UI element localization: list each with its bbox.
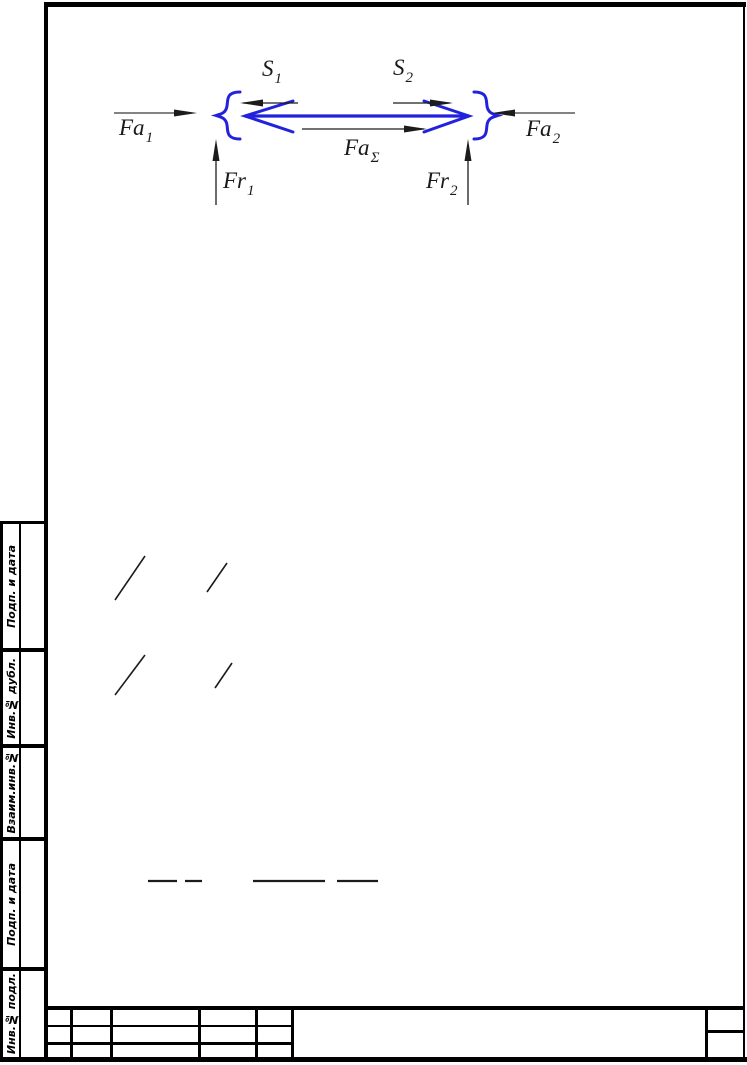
sidebar-cell-podp-i-data-2: Подп. и дата xyxy=(3,841,19,967)
frame-border-bottom xyxy=(0,1057,747,1062)
label-s2: S2 xyxy=(393,56,412,79)
titleblock-vline-izm xyxy=(70,1010,73,1057)
titleblock-vline-list xyxy=(110,1010,113,1057)
sidebar-cell-inv-dubl: Инв.№ дубл. xyxy=(3,652,19,744)
frame-border-right xyxy=(743,2,745,1062)
label-fa1: Fa1 xyxy=(119,116,152,139)
fr2-arrowhead-icon xyxy=(465,139,472,161)
label-fa2: Fa2 xyxy=(526,117,559,140)
s1-arrowhead-icon xyxy=(240,100,263,107)
label-fr2: Fr2 xyxy=(426,169,457,192)
titleblock-border-top xyxy=(44,1006,745,1010)
fraction-slash-1 xyxy=(115,556,145,600)
label-fr1: Fr1 xyxy=(223,169,254,192)
titleblock-row-line-thick xyxy=(48,1042,293,1045)
label-fa-sum: FaΣ xyxy=(344,136,378,159)
titleblock-vline-data xyxy=(291,1010,294,1057)
drawing-sheet: S1 S2 Fa1 Fa2 FaΣ Fr1 Fr2 Подп. и дата И… xyxy=(0,0,747,1065)
sidebar-cell-podp-i-data-1: Подп. и дата xyxy=(3,524,19,648)
frame-border-left xyxy=(44,2,48,1062)
fraction-slash-2 xyxy=(207,563,227,592)
titleblock-sheetcell-divider xyxy=(708,1030,745,1033)
sidebar-divider xyxy=(19,524,21,1057)
titleblock-vline-podp xyxy=(255,1010,258,1057)
titleblock-row-line-thin xyxy=(48,1025,293,1027)
titleblock-vline-dokum xyxy=(198,1010,201,1057)
fa1-arrowhead-icon xyxy=(174,110,197,117)
left-bearing-brace-icon xyxy=(216,92,240,139)
sidebar-cell-vzaim-inv: Взаим.инв.№ xyxy=(3,748,19,837)
fraction-slash-4 xyxy=(215,663,232,688)
titleblock-vline-sheetcell xyxy=(705,1010,708,1057)
fr1-arrowhead-icon xyxy=(213,139,220,161)
frame-border-top xyxy=(44,2,746,7)
sidebar-cell-inv-podl: Инв.№ подл. xyxy=(3,971,19,1057)
label-s1: S1 xyxy=(262,57,281,80)
right-bearing-brace-icon xyxy=(474,92,498,139)
fraction-slash-3 xyxy=(115,655,145,695)
